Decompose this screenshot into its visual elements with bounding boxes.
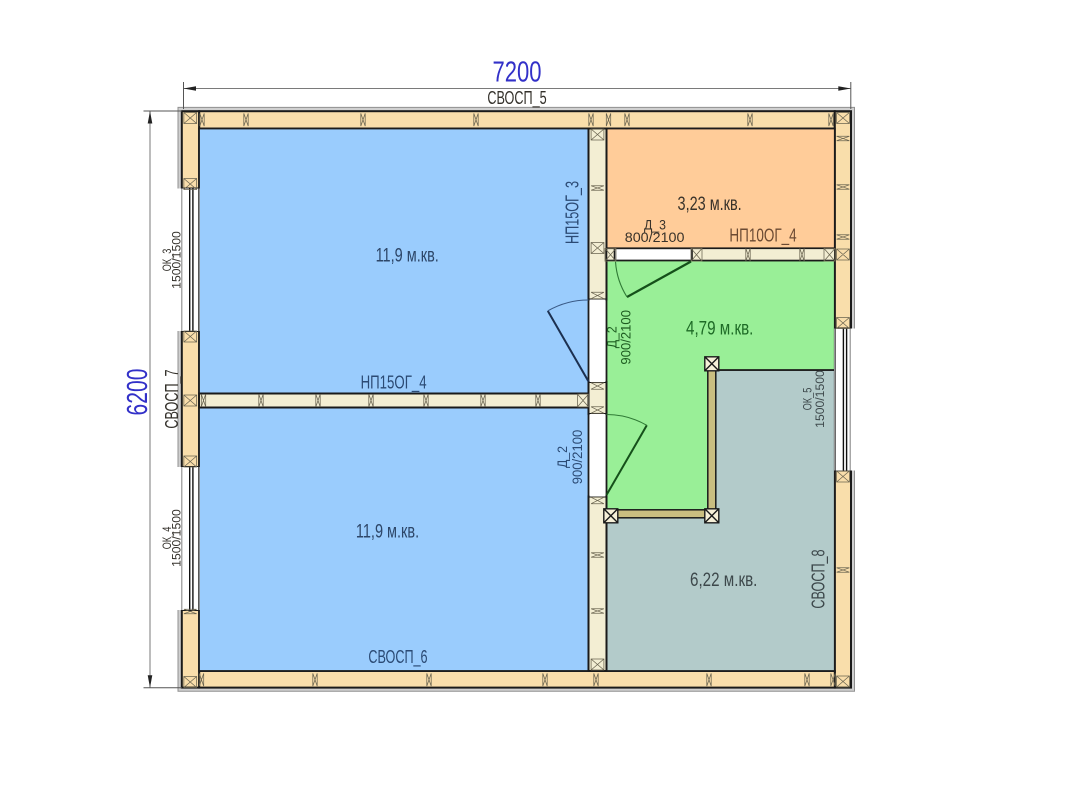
svg-text:СВОСП_6: СВОСП_6 [368, 648, 427, 668]
svg-text:900/2100: 900/2100 [570, 430, 585, 485]
svg-text:Д_2: Д_2 [604, 326, 620, 348]
svg-text:НП15ОГ_4: НП15ОГ_4 [361, 372, 427, 393]
svg-text:6200: 6200 [122, 369, 154, 416]
svg-text:НП10ОГ_4: НП10ОГ_4 [729, 226, 796, 247]
svg-text:11,9 м.кв.: 11,9 м.кв. [356, 521, 419, 542]
svg-text:800/2100: 800/2100 [625, 230, 685, 246]
svg-text:СВОСП_7: СВОСП_7 [163, 369, 183, 428]
svg-text:НП15ОГ_3: НП15ОГ_3 [563, 181, 583, 244]
svg-text:СВОСП_8: СВОСП_8 [809, 549, 829, 608]
svg-text:900/2100: 900/2100 [618, 310, 633, 365]
svg-text:СВОСП_5: СВОСП_5 [487, 89, 546, 109]
svg-text:6,22 м.кв.: 6,22 м.кв. [690, 568, 757, 590]
svg-text:Д_2: Д_2 [554, 446, 570, 468]
svg-text:11,9 м.кв.: 11,9 м.кв. [376, 245, 439, 266]
svg-text:1500/1500: 1500/1500 [169, 231, 183, 289]
svg-text:3,23 м.кв.: 3,23 м.кв. [678, 193, 742, 214]
svg-text:7200: 7200 [492, 57, 541, 88]
svg-text:1500/1500: 1500/1500 [169, 509, 183, 567]
svg-text:1500/1500: 1500/1500 [813, 370, 827, 428]
svg-text:4,79 м.кв.: 4,79 м.кв. [686, 317, 753, 339]
